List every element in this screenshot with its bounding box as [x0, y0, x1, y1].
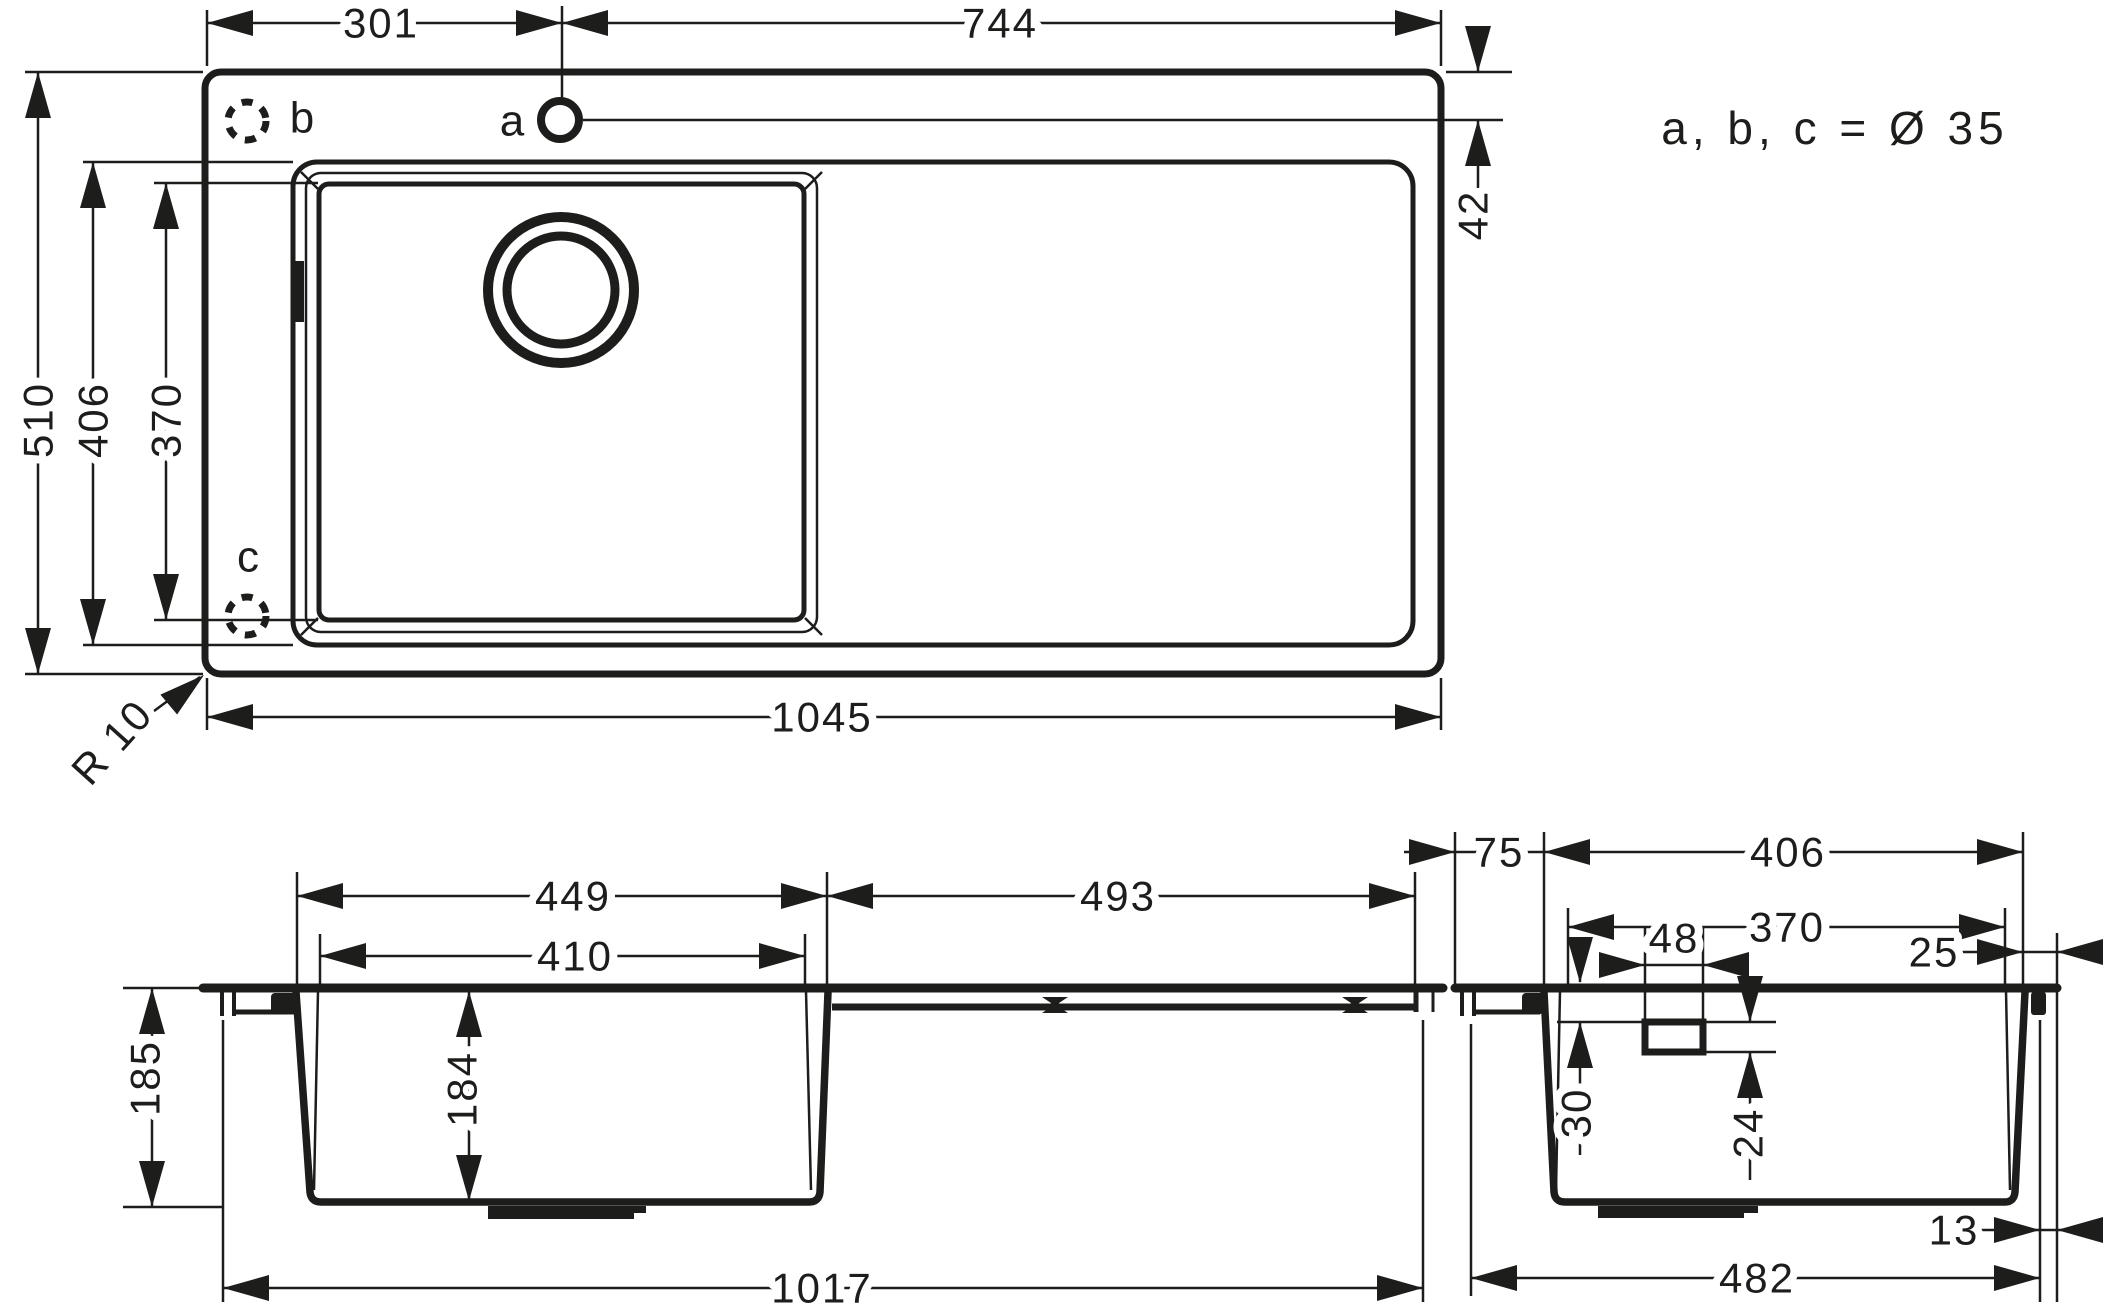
tap-hole-c-optional [228, 597, 266, 635]
front-arrowheads [139, 883, 1423, 1301]
dim-height-overall: 185 [122, 1040, 169, 1116]
corner-radius-note: R 10 [62, 690, 162, 793]
side-drain-pad-step [1744, 1206, 1758, 1213]
front-drain-pad-step [634, 1206, 646, 1213]
front-left-lip [222, 990, 234, 1016]
dim-body-width: 1017 [771, 1265, 872, 1306]
dim-back-left: 301 [343, 0, 419, 47]
bowl-corner-chamfers [301, 172, 822, 635]
front-bowl-inner-walls [314, 991, 811, 1190]
overflow-opening [1645, 1022, 1703, 1052]
dim-back-right: 744 [962, 0, 1038, 47]
dim-overflow-height: 24 [1725, 1108, 1772, 1159]
dim-bowl-depth: 370 [143, 382, 190, 458]
front-bowl-profile [296, 992, 828, 1202]
dim-back-ledge: 75 [1474, 829, 1525, 876]
technical-drawing-page: 301 744 42 510 406 370 1045 R 10 a b c a… [0, 0, 2120, 1306]
drain-inner-ring [507, 236, 615, 344]
front-left-clip [271, 993, 296, 1014]
plan-view: 301 744 42 510 406 370 1045 R 10 a b c a… [15, 0, 2009, 794]
plan-bowl-rim-line [306, 173, 817, 632]
side-left-lip [1462, 990, 1474, 1016]
holes-diameter-note: a, b, c = Ø 35 [1661, 102, 2008, 154]
dim-hole-centerline: 42 [1450, 190, 1497, 241]
dim-side-bowl-inner-width: 370 [1749, 904, 1825, 951]
sink-dimension-drawing: 301 744 42 510 406 370 1045 R 10 a b c a… [0, 0, 2120, 1306]
dim-drainboard-width: 493 [1080, 873, 1156, 920]
dim-bowl-inner-width: 410 [537, 933, 613, 980]
plan-bowl-inner-edge [319, 184, 804, 620]
dim-bowl-inner-depth: 184 [439, 1051, 486, 1127]
side-bowl-profile [1544, 992, 2025, 1202]
dim-bowl-rim-width: 449 [535, 873, 611, 920]
side-right-clip [2031, 992, 2046, 1015]
tap-hole-b-optional [228, 102, 266, 140]
overflow-slot-mark [295, 261, 304, 322]
side-view: 75 406 370 48 25 30 24 13 482 [1404, 829, 2103, 1303]
dim-recess-depth: 406 [70, 382, 117, 458]
dim-width-overall: 1045 [771, 694, 872, 741]
front-dimension-lines [123, 872, 1423, 1302]
front-view: 449 493 410 185 184 1017 [122, 872, 1444, 1306]
tap-hole-a [541, 101, 579, 139]
dim-front-ledge: 25 [1909, 929, 1960, 976]
front-drain-pad [488, 1206, 634, 1219]
dim-bottom-edge-offset: 13 [1929, 1207, 1980, 1254]
dim-recess-width: 406 [1750, 829, 1826, 876]
dim-body-depth: 482 [1719, 1255, 1795, 1302]
hole-b-label: b [290, 94, 314, 143]
side-drain-pad [1598, 1206, 1744, 1218]
dim-overflow-top-offset: 30 [1553, 1088, 1600, 1139]
dim-overflow-width: 48 [1649, 915, 1700, 962]
plan-recess-outline [293, 162, 1413, 645]
dim-depth-overall: 510 [15, 382, 62, 458]
hole-a-label: a [500, 97, 525, 146]
hole-c-label: c [237, 533, 259, 582]
